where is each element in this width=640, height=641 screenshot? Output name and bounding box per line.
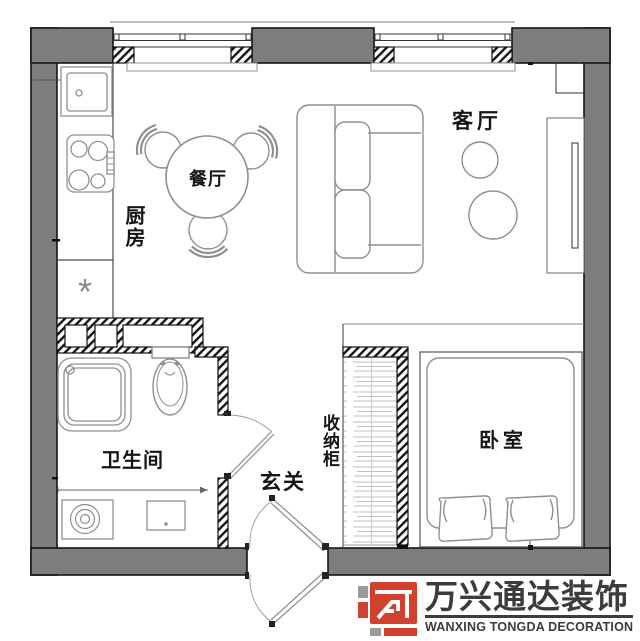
duct-shaft bbox=[95, 325, 117, 347]
window-top-left bbox=[113, 34, 257, 71]
side-table-icon bbox=[462, 142, 498, 178]
washing-machine-icon bbox=[62, 500, 113, 539]
bathroom-sink-icon bbox=[147, 501, 185, 530]
living-room-label: 客厅 bbox=[452, 105, 502, 135]
sofa-icon bbox=[297, 105, 423, 273]
window-jamb bbox=[374, 47, 394, 63]
toilet-icon bbox=[152, 347, 189, 415]
watermark-divider bbox=[425, 615, 633, 618]
shower-icon bbox=[58, 358, 131, 431]
wall-bottom-left bbox=[31, 548, 247, 575]
watermark: 万兴通达装饰 WANXING TONGDA DECORATION bbox=[356, 580, 633, 638]
window-sill bbox=[127, 63, 257, 71]
kitchen-sink-icon bbox=[61, 67, 112, 116]
bedroom-label: 卧室 bbox=[479, 424, 527, 453]
wall-niche bbox=[556, 63, 584, 93]
entry-label: 玄关 bbox=[260, 466, 306, 496]
bathroom-label: 卫生间 bbox=[101, 444, 164, 473]
dimension-tick bbox=[52, 477, 58, 480]
dining-label: 餐厅 bbox=[189, 165, 227, 191]
stove-icon bbox=[67, 135, 114, 192]
watermark-brand-cn: 万兴通达装饰 bbox=[425, 580, 633, 613]
entry-door bbox=[245, 495, 329, 627]
wall-right bbox=[584, 28, 610, 575]
wall-top-left bbox=[31, 28, 113, 63]
floor-plan-drawing: * bbox=[0, 0, 640, 641]
window-top-right bbox=[371, 34, 515, 71]
watermark-logo-icon bbox=[356, 580, 420, 638]
window-jamb bbox=[113, 47, 134, 63]
dimension-line bbox=[58, 487, 208, 493]
window-sill bbox=[371, 63, 515, 71]
floor-plan: * bbox=[0, 0, 640, 641]
dimension-tick bbox=[52, 239, 60, 242]
tv-icon bbox=[572, 143, 578, 248]
dimension-tick bbox=[528, 62, 533, 65]
side-table-icon bbox=[469, 191, 517, 239]
storage-cabinet-label: 收纳柜 bbox=[317, 414, 342, 468]
kitchen-label: 厨房 bbox=[119, 205, 148, 249]
window-jamb bbox=[492, 47, 512, 63]
bath-cabinet bbox=[123, 325, 192, 347]
window-jamb bbox=[231, 47, 252, 63]
wall-top-right bbox=[512, 28, 610, 63]
side-tables bbox=[462, 142, 517, 239]
pillow-icon bbox=[439, 496, 492, 541]
watermark-brand-en: WANXING TONGDA DECORATION bbox=[425, 620, 633, 634]
wall-left bbox=[31, 28, 57, 575]
wall-bottom-right bbox=[328, 548, 610, 575]
duct-shaft bbox=[65, 325, 87, 347]
wall-top-pier bbox=[252, 28, 374, 63]
gas-meter-asterisk: * bbox=[78, 271, 92, 312]
pillow-icon bbox=[506, 496, 559, 541]
wardrobe-icon bbox=[343, 324, 408, 549]
